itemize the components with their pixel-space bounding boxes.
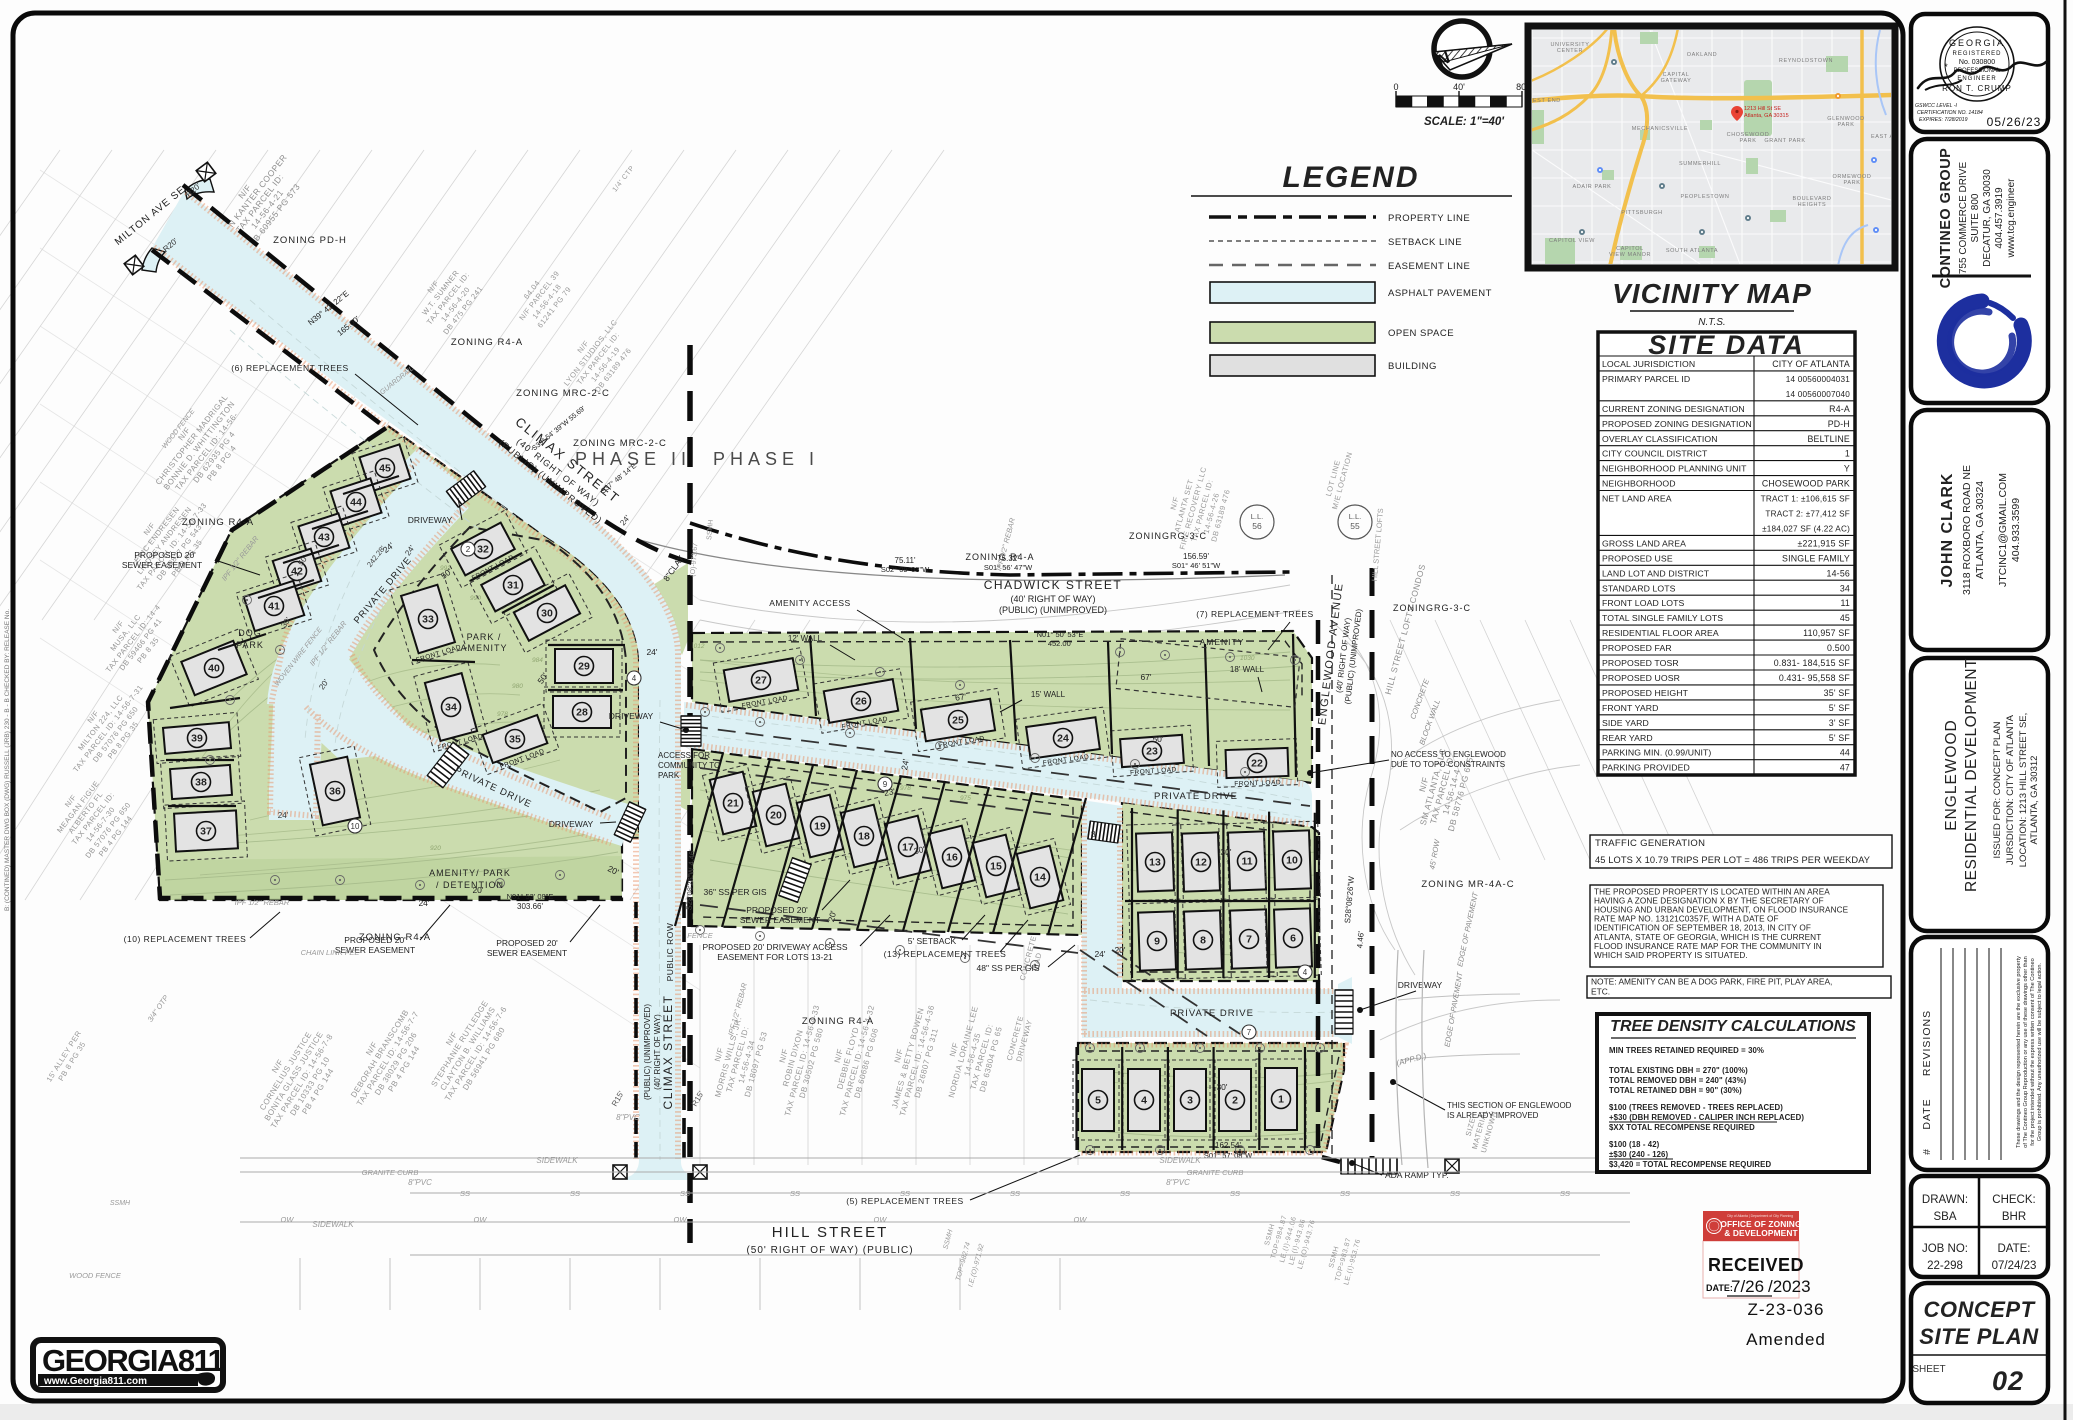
svg-text:1: 1 (1278, 1094, 1284, 1106)
svg-text:MIN TREES RETAINED REQUIRED =: MIN TREES RETAINED REQUIRED = 30% (1609, 1046, 1764, 1055)
svg-text:38: 38 (195, 777, 207, 789)
svg-text:JOHN CLARK: JOHN CLARK (1939, 473, 1956, 588)
svg-text:13: 13 (1149, 857, 1161, 869)
svg-text:SOUTH ATLANTA: SOUTH ATLANTA (1666, 248, 1718, 254)
svg-text:(PUBLIC) (UNIMPROVED): (PUBLIC) (UNIMPROVED) (643, 1004, 652, 1100)
svg-text:15' WALL: 15' WALL (1031, 690, 1066, 699)
svg-text:7: 7 (1246, 934, 1252, 946)
svg-text:15: 15 (990, 861, 1002, 873)
svg-text:City of Atlanta | Department o: City of Atlanta | Department of City Pla… (1727, 1214, 1793, 1218)
svg-text:9: 9 (1154, 936, 1160, 948)
svg-text:GEORGIA: GEORGIA (1949, 38, 2005, 48)
svg-text:755 COMMERCE DRIVE: 755 COMMERCE DRIVE (1958, 162, 1969, 275)
svg-text:28: 28 (576, 707, 588, 719)
svg-text:SS: SS (1340, 1189, 1350, 1198)
svg-text:30': 30' (1216, 1082, 1227, 1092)
svg-text:SHEET: SHEET (1912, 1364, 1945, 1375)
svg-text:ZONING MRC-2-C: ZONING MRC-2-C (573, 438, 667, 449)
svg-text:DOG: DOG (238, 628, 262, 638)
svg-text:6: 6 (1290, 933, 1296, 945)
svg-text:4: 4 (632, 674, 637, 683)
svg-text:1213 Hill St SE: 1213 Hill St SE (1744, 106, 1781, 112)
svg-text:990: 990 (470, 595, 481, 602)
svg-text:PARK: PARK (1740, 138, 1757, 144)
svg-text:CENTER: CENTER (1557, 48, 1583, 54)
svg-text:HOUSING AND URBAN DEVELOPMENT,: HOUSING AND URBAN DEVELOPMENT, ON FLOOD … (1594, 906, 1849, 915)
svg-text:SS: SS (790, 1189, 800, 1198)
svg-text:44: 44 (1840, 748, 1850, 758)
svg-text:Amended: Amended (1746, 1330, 1826, 1349)
svg-text:40': 40' (1453, 82, 1465, 92)
svg-text:AMENITY: AMENITY (1200, 637, 1245, 647)
svg-text:GATEWAY: GATEWAY (1661, 78, 1692, 84)
svg-text:PROPERTY LINE: PROPERTY LINE (1388, 213, 1470, 224)
svg-text:S01° 57' 08"W: S01° 57' 08"W (1204, 1151, 1253, 1160)
svg-text:GRANITE CURB: GRANITE CURB (362, 1168, 419, 1177)
svg-text:SUMMERHILL: SUMMERHILL (1679, 161, 1721, 167)
svg-text:BUILDING: BUILDING (1388, 361, 1437, 372)
svg-text:TOTAL EXISTING DBH = 270" (100: TOTAL EXISTING DBH = 270" (100%) (1609, 1066, 1748, 1075)
svg-text:*: * (1944, 62, 1948, 72)
svg-text:REAR YARD: REAR YARD (1602, 733, 1653, 743)
svg-text:20: 20 (770, 810, 782, 822)
svg-text:THIS SECTION OF ENGLEWOOD: THIS SECTION OF ENGLEWOOD (1447, 1101, 1572, 1110)
svg-text:975: 975 (960, 795, 971, 802)
svg-text:SS: SS (570, 1189, 580, 1198)
svg-text:& DEVELOPMENT: & DEVELOPMENT (1724, 1228, 1798, 1238)
svg-text:(40' RIGHT OF WAY): (40' RIGHT OF WAY) (1010, 594, 1095, 604)
svg-text:29: 29 (578, 661, 590, 673)
svg-text:OW: OW (281, 1215, 295, 1224)
svg-text:2: 2 (466, 545, 471, 554)
svg-text:TOTAL SINGLE FAMILY LOTS: TOTAL SINGLE FAMILY LOTS (1602, 613, 1723, 623)
svg-text:3: 3 (1187, 1095, 1193, 1107)
svg-text:8': 8' (1091, 829, 1098, 839)
svg-text:PRIVATE DRIVE: PRIVATE DRIVE (1154, 791, 1238, 802)
svg-text:S02° 09' 03"W: S02° 09' 03"W (881, 565, 930, 574)
svg-text:IPF 1/2" REBAR: IPF 1/2" REBAR (235, 898, 290, 907)
svg-text:67': 67' (1140, 672, 1151, 682)
svg-text:CLIMAX STREET: CLIMAX STREET (661, 995, 675, 1110)
svg-text:24': 24' (899, 758, 911, 771)
svg-text:FRONT LOAD LOTS: FRONT LOAD LOTS (1602, 598, 1685, 608)
svg-text:34: 34 (445, 702, 457, 714)
svg-text:02: 02 (1992, 1366, 2024, 1396)
svg-text:SS: SS (1010, 1189, 1020, 1198)
svg-text:SIDEWALK: SIDEWALK (536, 1156, 578, 1165)
svg-text:ADAIR PARK: ADAIR PARK (1573, 184, 1612, 190)
svg-text:SITE PLAN: SITE PLAN (1919, 1324, 2039, 1349)
svg-text:18: 18 (858, 831, 870, 843)
svg-text:PROPOSED 20': PROPOSED 20' (344, 935, 406, 945)
svg-text:48" SS PER GIS: 48" SS PER GIS (976, 963, 1039, 973)
svg-text:GEORGIA811: GEORGIA811 (42, 1343, 225, 1378)
svg-text:36: 36 (329, 786, 341, 798)
svg-text:05/26/23: 05/26/23 (1987, 115, 2042, 129)
svg-text:THE PROPOSED PROPERTY IS LOCAT: THE PROPOSED PROPERTY IS LOCATED WITHIN … (1594, 888, 1830, 897)
svg-text:ISSUED FOR: CONCEPT PLAN: ISSUED FOR: CONCEPT PLAN (1992, 721, 2003, 858)
svg-text:42: 42 (291, 566, 303, 578)
svg-text:CONCEPT: CONCEPT (1923, 1297, 2035, 1322)
svg-text:/ DETENTION: / DETENTION (436, 880, 504, 890)
svg-text:SBA: SBA (1933, 1211, 1956, 1223)
svg-text:47: 47 (1840, 763, 1850, 773)
svg-text:RATE MAP NO. 13121C0357F, WITH: RATE MAP NO. 13121C0357F, WITH A DATE OF (1594, 915, 1779, 924)
svg-text:24': 24' (418, 898, 429, 908)
svg-text:404.933.3599: 404.933.3599 (2010, 498, 2022, 562)
svg-text:of The Contineo Group Reprod: of The Contineo Group Reproduction or an… (2023, 956, 2029, 1147)
svg-text:EXPIRES: 7/28/2019: EXPIRES: 7/28/2019 (1919, 117, 1968, 123)
svg-text:PROPOSED UOSR: PROPOSED UOSR (1602, 673, 1680, 683)
svg-text:IDENTIFICATION OF SEPTEMBER 18: IDENTIFICATION OF SEPTEMBER 18, 2013, IN… (1594, 924, 1811, 933)
svg-text:SS: SS (900, 1189, 910, 1198)
svg-text:PHASE I: PHASE I (713, 449, 819, 469)
svg-text:24: 24 (1057, 733, 1069, 745)
svg-text:L.L.: L.L. (1349, 512, 1362, 521)
svg-text:OW: OW (474, 1215, 488, 1224)
svg-text:Group is prohibited. Any una: Group is prohibited. Any unauthorized us… (2037, 962, 2043, 1141)
svg-text:5' SETBACK: 5' SETBACK (908, 936, 957, 946)
svg-text:24': 24' (1094, 949, 1105, 959)
svg-text:N.T.S.: N.T.S. (1698, 317, 1725, 328)
svg-text:1: 1 (1845, 449, 1850, 459)
svg-text:SS: SS (1230, 1189, 1240, 1198)
svg-text:34: 34 (1840, 583, 1850, 593)
svg-text:PROPOSED 20': PROPOSED 20' (134, 550, 196, 560)
svg-text:for the project intended with: for the project intended without the exp… (2030, 958, 2036, 1145)
svg-text:/2023: /2023 (1768, 1277, 1811, 1296)
svg-text:WOOD FENCE: WOOD FENCE (69, 1271, 122, 1280)
svg-text:36" SS PER GIS: 36" SS PER GIS (703, 887, 766, 897)
svg-text:PROPOSED 20': PROPOSED 20' (496, 938, 558, 948)
svg-text:ZONINGRG-3-C: ZONINGRG-3-C (1129, 531, 1207, 541)
svg-text:(7) REPLACEMENT TREES: (7) REPLACEMENT TREES (1196, 609, 1313, 619)
svg-text:21: 21 (727, 798, 739, 810)
svg-text:10: 10 (351, 822, 360, 831)
svg-text:ATLANTA, GA 30312: ATLANTA, GA 30312 (2029, 756, 2040, 845)
svg-text:PROPOSED ZONING DESIGNATION: PROPOSED ZONING DESIGNATION (1602, 419, 1752, 429)
svg-text:PEOPLESTOWN: PEOPLESTOWN (1681, 194, 1730, 200)
svg-text:DRIVEWAY: DRIVEWAY (609, 711, 654, 721)
svg-text:$100 (18 - 42): $100 (18 - 42) (1609, 1140, 1660, 1149)
svg-text:10: 10 (1286, 855, 1298, 867)
svg-text:33: 33 (422, 614, 434, 626)
svg-text:156.59': 156.59' (1183, 552, 1209, 561)
svg-text:These drawings and the design: These drawings and the design represente… (2016, 956, 2022, 1148)
svg-text:FRONT YARD: FRONT YARD (1602, 703, 1659, 713)
svg-text:PUBLIC ROW: PUBLIC ROW (665, 923, 675, 982)
svg-text:SEWER EASEMENT: SEWER EASEMENT (740, 915, 820, 925)
svg-text:RESIDENTIAL DEVELOPMENT: RESIDENTIAL DEVELOPMENT (1963, 658, 1980, 892)
svg-text:PRIVATE DRIVE: PRIVATE DRIVE (1170, 1008, 1254, 1019)
svg-text:SS: SS (680, 1189, 690, 1198)
svg-text:www.Georgia811.com: www.Georgia811.com (43, 1376, 147, 1387)
svg-text:DECATUR, GA 30030: DECATUR, GA 30030 (1982, 169, 1993, 267)
svg-text:TOTAL REMOVED DBH = 240" (43%): TOTAL REMOVED DBH = 240" (43%) (1609, 1076, 1747, 1085)
svg-text:67': 67' (954, 691, 967, 702)
svg-text:JOB NO:: JOB NO: (1922, 1243, 1968, 1255)
svg-text:TRACT 1: ±106,615 SF: TRACT 1: ±106,615 SF (1761, 495, 1850, 504)
svg-text:3118 ROXBORO ROAD NE: 3118 ROXBORO ROAD NE (1961, 465, 1973, 595)
svg-text:CONTINEO GROUP: CONTINEO GROUP (1938, 148, 1954, 289)
svg-text:1030: 1030 (1240, 655, 1255, 662)
svg-text:DATE:: DATE: (1997, 1243, 2030, 1255)
svg-text:8"PVC: 8"PVC (1166, 1178, 1190, 1187)
svg-text:40: 40 (208, 663, 220, 675)
svg-text:303.66': 303.66' (517, 902, 543, 911)
svg-text:984: 984 (532, 657, 543, 664)
svg-text:SUITE 800: SUITE 800 (1970, 193, 1981, 242)
svg-text:RESIDENTIAL FLOOR AREA: RESIDENTIAL FLOOR AREA (1602, 628, 1719, 638)
svg-text:OVERLAY CLASSIFICATION: OVERLAY CLASSIFICATION (1602, 434, 1718, 444)
svg-text:12: 12 (1195, 857, 1207, 869)
svg-text:404.457.3919: 404.457.3919 (1994, 187, 2005, 249)
svg-text:REYNOLDSTOWN: REYNOLDSTOWN (1779, 58, 1833, 64)
svg-text:(6) REPLACEMENT TREES: (6) REPLACEMENT TREES (231, 363, 348, 373)
svg-text:S01° 56' 47"W: S01° 56' 47"W (984, 563, 1033, 572)
svg-text:OW: OW (1074, 1215, 1088, 1224)
svg-text:20': 20' (1114, 945, 1125, 955)
svg-text:8"PVC: 8"PVC (408, 1178, 432, 1187)
svg-text:RON T. CRUMP: RON T. CRUMP (1942, 84, 2012, 93)
svg-text:AMENITY/ PARK: AMENITY/ PARK (429, 868, 511, 878)
svg-text:35' SF: 35' SF (1824, 688, 1851, 698)
svg-text:LOCATION: 1213 HILL STREET S: LOCATION: 1213 HILL STREET SE, (2018, 713, 2029, 868)
svg-text:REGISTERED: REGISTERED (1952, 51, 2001, 57)
svg-text:4: 4 (1141, 1095, 1147, 1107)
svg-text:GRANITE CURB: GRANITE CURB (1187, 1168, 1244, 1177)
svg-text:EASEMENT LINE: EASEMENT LINE (1388, 261, 1470, 272)
svg-text:16: 16 (946, 852, 958, 864)
svg-text:CHAIN LINK FEE: CHAIN LINK FEE (301, 948, 361, 957)
svg-text:No. 030800: No. 030800 (1959, 59, 1995, 66)
svg-text:+$30 (DBH REMOVED - CALIPER IN: +$30 (DBH REMOVED - CALIPER INCH REPLACE… (1609, 1113, 1804, 1122)
svg-text:24': 24' (278, 811, 289, 820)
svg-text:110,957 SF: 110,957 SF (1803, 628, 1850, 638)
svg-text:ZONING PD-H: ZONING PD-H (273, 235, 347, 246)
svg-text:PROPOSED FAR: PROPOSED FAR (1602, 643, 1672, 653)
svg-text:14 00560007040: 14 00560007040 (1786, 390, 1851, 399)
svg-text:VIEW MANOR: VIEW MANOR (1609, 252, 1651, 258)
svg-text:26: 26 (855, 696, 867, 708)
svg-text:45: 45 (379, 463, 391, 475)
svg-text:8: 8 (1200, 935, 1206, 947)
svg-text:GRANT PARK: GRANT PARK (1764, 138, 1805, 144)
svg-text:4: 4 (1303, 968, 1308, 977)
svg-text:ATLANTA, GA 30324: ATLANTA, GA 30324 (1974, 481, 1986, 579)
svg-text:SINGLE FAMILY: SINGLE FAMILY (1782, 553, 1850, 563)
svg-text:GROSS LAND AREA: GROSS LAND AREA (1602, 538, 1686, 548)
svg-text:±184,027 SF (4.22 AC): ±184,027 SF (4.22 AC) (1762, 524, 1850, 533)
svg-text:45: 45 (1840, 613, 1850, 623)
svg-text:REVISIONS: REVISIONS (1921, 1010, 1933, 1076)
svg-text:31: 31 (507, 580, 519, 592)
svg-text:B: (CONTINED) MASTER DWG BOX: B: (CONTINED) MASTER DWG BOX (DWG) RUSSE… (4, 609, 11, 911)
svg-text:PARK: PARK (236, 640, 264, 650)
svg-text:ZONING MRC-2-C: ZONING MRC-2-C (516, 388, 610, 399)
svg-text:56: 56 (1252, 521, 1262, 531)
svg-text:980: 980 (512, 683, 523, 690)
svg-text:$100 (TREES REMOVED - TREES RE: $100 (TREES REMOVED - TREES REPLACED) (1609, 1103, 1783, 1112)
svg-text:50': 50' (1152, 734, 1163, 744)
svg-text:ZONINGRG-3-C: ZONINGRG-3-C (1393, 603, 1471, 613)
svg-text:AMENITY: AMENITY (460, 643, 507, 653)
svg-text:14: 14 (1034, 872, 1046, 884)
svg-text:OPEN SPACE: OPEN SPACE (1388, 328, 1454, 339)
svg-text:0.831- 184,515 SF: 0.831- 184,515 SF (1774, 658, 1851, 668)
svg-text:452.00': 452.00' (1048, 639, 1073, 648)
svg-text:12' WALL: 12' WALL (788, 634, 823, 643)
svg-text:DRIVEWAY: DRIVEWAY (1398, 980, 1443, 990)
svg-text:43: 43 (318, 532, 330, 544)
svg-text:Z-23-036: Z-23-036 (1748, 1300, 1825, 1319)
svg-text:07/24/23: 07/24/23 (1992, 1260, 2037, 1272)
svg-text:55: 55 (1350, 521, 1360, 531)
svg-text:N01° 50' 53"E: N01° 50' 53"E (1037, 630, 1084, 639)
svg-text:44: 44 (350, 497, 362, 509)
svg-text:PD-H: PD-H (1828, 419, 1850, 429)
svg-text:FLOOD INSURANCE RATE MAP FOR T: FLOOD INSURANCE RATE MAP FOR THE COMMUNI… (1594, 942, 1822, 951)
svg-text:39: 39 (191, 733, 203, 745)
svg-text:JTCINC1@GMAIL.COM: JTCINC1@GMAIL.COM (1997, 473, 2009, 587)
svg-text:IS ALREADY IMPROVED: IS ALREADY IMPROVED (1447, 1111, 1539, 1120)
svg-text:Atlanta, GA 30315: Atlanta, GA 30315 (1744, 113, 1789, 119)
svg-text:SIDE YARD: SIDE YARD (1602, 718, 1649, 728)
svg-text:14-56: 14-56 (1827, 568, 1851, 578)
svg-text:PARK: PARK (1844, 180, 1861, 186)
svg-text:SS: SS (1450, 1189, 1460, 1198)
svg-text:TREE DENSITY CALCULATIONS: TREE DENSITY CALCULATIONS (1610, 1018, 1856, 1035)
svg-text:CHECK:: CHECK: (1992, 1194, 2035, 1206)
svg-text:SEWER EASEMENT: SEWER EASEMENT (487, 948, 567, 958)
svg-text:5: 5 (1095, 1095, 1101, 1107)
svg-text:AMENITY ACCESS: AMENITY ACCESS (769, 598, 850, 608)
svg-text:FENCE: FENCE (687, 931, 713, 940)
svg-text:ACCESS FOR: ACCESS FOR (658, 751, 710, 760)
svg-text:14 00560004031: 14 00560004031 (1786, 375, 1851, 384)
svg-text:JURSDICTION: CITY OF ATLANTA: JURSDICTION: CITY OF ATLANTA (2005, 714, 2016, 865)
svg-text:SETBACK LINE: SETBACK LINE (1388, 237, 1462, 248)
svg-text:NEIGHBORHOOD: NEIGHBORHOOD (1602, 479, 1676, 489)
svg-text:0.500: 0.500 (1827, 643, 1850, 653)
svg-text:(50' RIGHT OF WAY) (PUBLIC): (50' RIGHT OF WAY) (PUBLIC) (746, 1245, 913, 1256)
svg-text:LEGEND: LEGEND (1282, 161, 1419, 194)
svg-text:PITTSBURGH: PITTSBURGH (1621, 210, 1662, 216)
svg-text:23': 23' (883, 786, 896, 798)
svg-text:SSMH: SSMH (110, 1200, 131, 1207)
svg-text:ENGINEER: ENGINEER (1957, 76, 1996, 82)
svg-text:27: 27 (755, 675, 767, 687)
svg-text:ZONING MR-4A-C: ZONING MR-4A-C (1421, 879, 1514, 890)
svg-text:PROPOSED USE: PROPOSED USE (1602, 553, 1673, 563)
svg-text:S01° 46' 51"W: S01° 46' 51"W (1172, 561, 1221, 570)
svg-text:0.431- 95,558 SF: 0.431- 95,558 SF (1779, 673, 1851, 683)
svg-text:RECEIVED: RECEIVED (1708, 1255, 1804, 1275)
svg-text:WEST END: WEST END (1527, 98, 1561, 104)
svg-text:LOCAL JURISDICTION: LOCAL JURISDICTION (1602, 359, 1695, 369)
svg-text:TRAFFIC GENERATION: TRAFFIC GENERATION (1595, 838, 1705, 849)
svg-text:DRIVEWAY: DRIVEWAY (408, 515, 453, 525)
svg-text:75.11': 75.11' (895, 556, 916, 565)
svg-text:22-298: 22-298 (1927, 1260, 1963, 1272)
svg-text:2: 2 (1232, 1095, 1238, 1107)
svg-text:NET LAND AREA: NET LAND AREA (1602, 494, 1672, 504)
svg-text:41: 41 (268, 601, 280, 613)
svg-text:CHOSEWOOD PARK: CHOSEWOOD PARK (1762, 479, 1850, 489)
svg-text:STANDARD LOTS: STANDARD LOTS (1602, 583, 1676, 593)
svg-text:35: 35 (509, 734, 521, 746)
svg-text:www.tcg.engineer: www.tcg.engineer (2006, 178, 2017, 259)
svg-text:NOTE: AMENITY CAN BE A DOG PA: NOTE: AMENITY CAN BE A DOG PARK, FIRE PI… (1591, 977, 1832, 987)
svg-text:978: 978 (900, 785, 911, 792)
svg-text:PARK: PARK (1838, 122, 1855, 128)
svg-text:NEIGHBORHOOD PLANNING UNIT: NEIGHBORHOOD PLANNING UNIT (1602, 464, 1747, 474)
svg-text:LAND LOT AND DISTRICT: LAND LOT AND DISTRICT (1602, 568, 1710, 578)
svg-text:11: 11 (1241, 856, 1252, 868)
svg-text:37: 37 (200, 826, 212, 838)
svg-text:OW: OW (674, 1215, 688, 1224)
svg-text:4.46': 4.46' (1355, 930, 1365, 948)
svg-text:PROPOSED TOSR: PROPOSED TOSR (1602, 658, 1679, 668)
svg-text:PRIMARY PARCEL ID: PRIMARY PARCEL ID (1602, 374, 1690, 384)
svg-text:ATLANTA, STATE OF GEORGIA, WHI: ATLANTA, STATE OF GEORGIA, WHICH IS THE … (1594, 933, 1821, 942)
svg-text:45 LOTS X 10.79 TRIPS PER LOT: 45 LOTS X 10.79 TRIPS PER LOT = 486 TRIP… (1595, 855, 1870, 865)
svg-text:CAPITOL VIEW: CAPITOL VIEW (1549, 238, 1595, 244)
svg-text:7/26: 7/26 (1731, 1277, 1764, 1296)
svg-text:GSWCC LEVEL -I: GSWCC LEVEL -I (1915, 103, 1958, 109)
svg-text:SS: SS (1560, 1189, 1570, 1198)
svg-text:7: 7 (1247, 1028, 1252, 1037)
svg-text:SEWER EASEMENT: SEWER EASEMENT (122, 560, 202, 570)
svg-text:5' SF: 5' SF (1829, 733, 1851, 743)
svg-text:(10) REPLACEMENT TREES: (10) REPLACEMENT TREES (124, 934, 247, 944)
svg-text:TRACT 2: ±77,412 SF: TRACT 2: ±77,412 SF (1765, 510, 1850, 519)
svg-text:DATE:: DATE: (1706, 1283, 1733, 1293)
svg-text:19: 19 (814, 821, 826, 833)
svg-text:±$30 (240 - 126): ±$30 (240 - 126) (1609, 1150, 1668, 1159)
svg-text:DUE TO TOPO CONSTRAINTS: DUE TO TOPO CONSTRAINTS (1391, 760, 1505, 769)
svg-text:BHR: BHR (2002, 1211, 2026, 1223)
svg-text:R4-A: R4-A (1829, 404, 1850, 414)
svg-text:VICINITY MAP: VICINITY MAP (1612, 278, 1812, 309)
svg-text:162.54': 162.54' (1215, 1141, 1241, 1150)
svg-text:DATE: DATE (1921, 1098, 1933, 1129)
svg-text:ETC.: ETC. (1591, 987, 1610, 997)
svg-text:24': 24' (646, 647, 657, 657)
svg-text:25: 25 (952, 715, 964, 727)
svg-text:PROPOSED 20': PROPOSED 20' (746, 905, 808, 915)
svg-text:BELTLINE: BELTLINE (1807, 434, 1850, 444)
svg-text:8"PVC: 8"PVC (616, 1113, 640, 1122)
svg-text:MECHANICSVILLE: MECHANICSVILLE (1632, 126, 1688, 132)
svg-text:(40' RIGHT OF WAY): (40' RIGHT OF WAY) (653, 1014, 662, 1090)
svg-text:5' SF: 5' SF (1829, 703, 1851, 713)
svg-text:18' WALL: 18' WALL (1230, 665, 1265, 674)
svg-text:(PUBLIC) (UNIMPROVED): (PUBLIC) (UNIMPROVED) (999, 605, 1107, 615)
svg-text:±221,915 SF: ±221,915 SF (1797, 538, 1850, 548)
svg-text:PROPOSED 20' DRIVEWAY ACCESS: PROPOSED 20' DRIVEWAY ACCESS (702, 942, 847, 952)
svg-text:L.L.: L.L. (1251, 512, 1264, 521)
svg-text:$3,420 = TOTAL RECOMPENSE REQU: $3,420 = TOTAL RECOMPENSE REQUIRED (1609, 1160, 1771, 1169)
svg-text:EASEMENT FOR LOTS 13-21: EASEMENT FOR LOTS 13-21 (717, 952, 833, 962)
svg-text:920: 920 (430, 845, 441, 852)
svg-text:$XX TOTAL RECOMPENSE REQUIRED: $XX TOTAL RECOMPENSE REQUIRED (1609, 1123, 1755, 1132)
svg-text:DRIVEWAY: DRIVEWAY (549, 819, 594, 829)
svg-text:20': 20' (472, 885, 483, 895)
svg-text:DRAWN:: DRAWN: (1922, 1194, 1968, 1206)
svg-text:COMMUNITY TO: COMMUNITY TO (658, 761, 720, 770)
svg-text:CITY COUNCIL DISTRICT: CITY COUNCIL DISTRICT (1602, 449, 1708, 459)
